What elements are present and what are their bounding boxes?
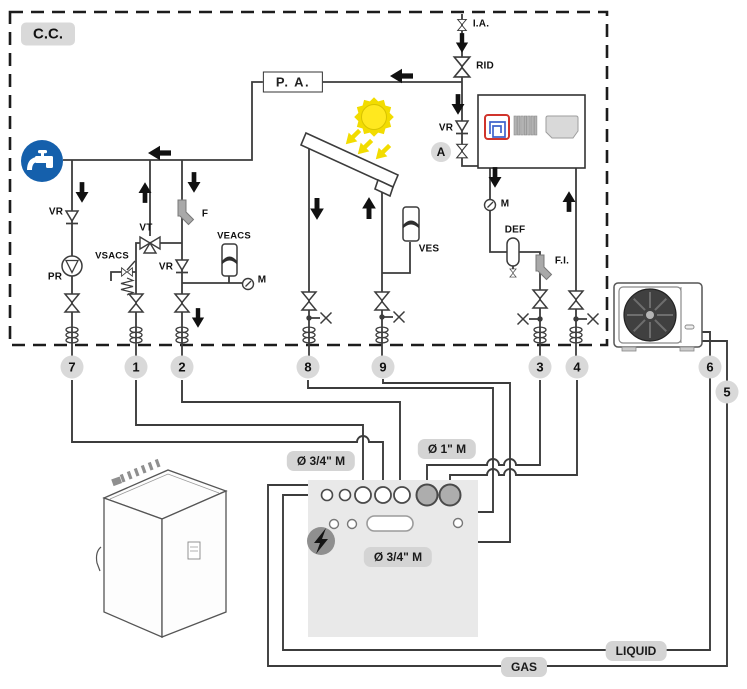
recirc-valve-icon [65,294,79,312]
connection-3: 3 [529,356,552,379]
label-check-valve-2: VR [159,262,173,273]
liquid-line-label: LIQUID [606,641,667,661]
cc-zone-label: C.C. [21,23,75,46]
cold-inlet-valve-icon [175,294,189,312]
pump-assembly-label: P. A. [263,72,323,93]
connection-1: 1 [125,356,148,379]
label-rid: RID [476,61,494,72]
label-filter: F [202,209,208,220]
label-gauge-heating: M [501,199,510,210]
label-mixing-valve: VT [139,223,152,234]
solar-supply-valve-icon [302,292,316,310]
dirt-separator-icon [507,238,519,266]
gas-line-label: GAS [501,657,547,677]
electrical-connection-icon [307,527,335,555]
outdoor-unit [614,283,702,351]
def-drain-valve-icon [510,269,516,277]
port-size-heating: Ø 1" M [418,439,476,459]
heat-emitters-box [478,95,585,168]
solar-drain-icon [394,312,405,323]
connection-7: 7 [61,356,84,379]
dhw-valve-icon [129,294,143,312]
sun-ray-arrow [353,136,375,158]
connection-6: 6 [699,356,722,379]
heating-return-drain-icon [588,314,599,325]
check-valve-icon [456,121,468,134]
solar-return-valve-icon [375,292,389,310]
heating-supply-valve-icon [533,290,547,308]
connection-9: 9 [372,356,395,379]
dhw-tap-icon [21,140,63,182]
shutoff-valve-icon [457,144,468,158]
recirc-check-valve-icon [66,211,78,224]
heating-return-valve-icon [569,291,583,309]
port-size-solar: Ø 3/4" M [364,547,432,567]
sun-ray-arrow [371,141,393,163]
solar-drain-icon [321,313,332,324]
radiator-icon [514,116,537,135]
zone-a-badge: A [431,142,451,162]
cold-check-valve-icon [176,260,188,273]
label-solar-expansion: VES [419,244,440,255]
recirc-pump-icon [62,256,82,276]
sun-icon [354,97,394,137]
connection-2: 2 [171,356,194,379]
underfloor-heating-icon [485,115,509,139]
rid-valve-icon [454,57,469,77]
indoor-unit [97,459,227,637]
filter-icon [178,200,194,225]
port-size-dhw: Ø 3/4" M [287,451,355,471]
line-filter-icon [536,255,552,280]
pipes [63,14,587,356]
dhw-safety-valve-icon [121,261,135,295]
label-pump: PR [48,272,62,283]
solar-expansion-vessel-icon [403,207,419,241]
label-line-filter: F.I. [555,256,569,267]
air-vent-valve-icon [458,19,467,30]
mixing-valve-icon [140,237,160,253]
connection-8: 8 [297,356,320,379]
tee-joints [306,314,578,321]
label-check-valve-top: VR [439,123,453,134]
heating-supply-drain-icon [518,314,529,325]
label-dhw-expansion: VEACS [217,231,251,242]
label-air-vent: I.A. [473,19,489,30]
heating-gauge-icon [485,200,496,211]
dhw-expansion-vessel-icon [222,244,237,276]
label-gauge-dhw: M [258,275,267,286]
connection-5: 5 [716,381,739,404]
fan-coil-icon [546,116,578,138]
label-check-valve-7: VR [49,207,63,218]
hydraulic-scheme: C.C. P. A. I.A. RID VR A M DEF F.I. F VR… [0,0,747,689]
connection-4: 4 [566,356,589,379]
scheme-drawing [0,0,747,689]
label-dhw-safety-valve: VSACS [95,251,129,262]
dhw-gauge-icon [243,279,254,290]
label-dirt-separator: DEF [505,225,526,236]
